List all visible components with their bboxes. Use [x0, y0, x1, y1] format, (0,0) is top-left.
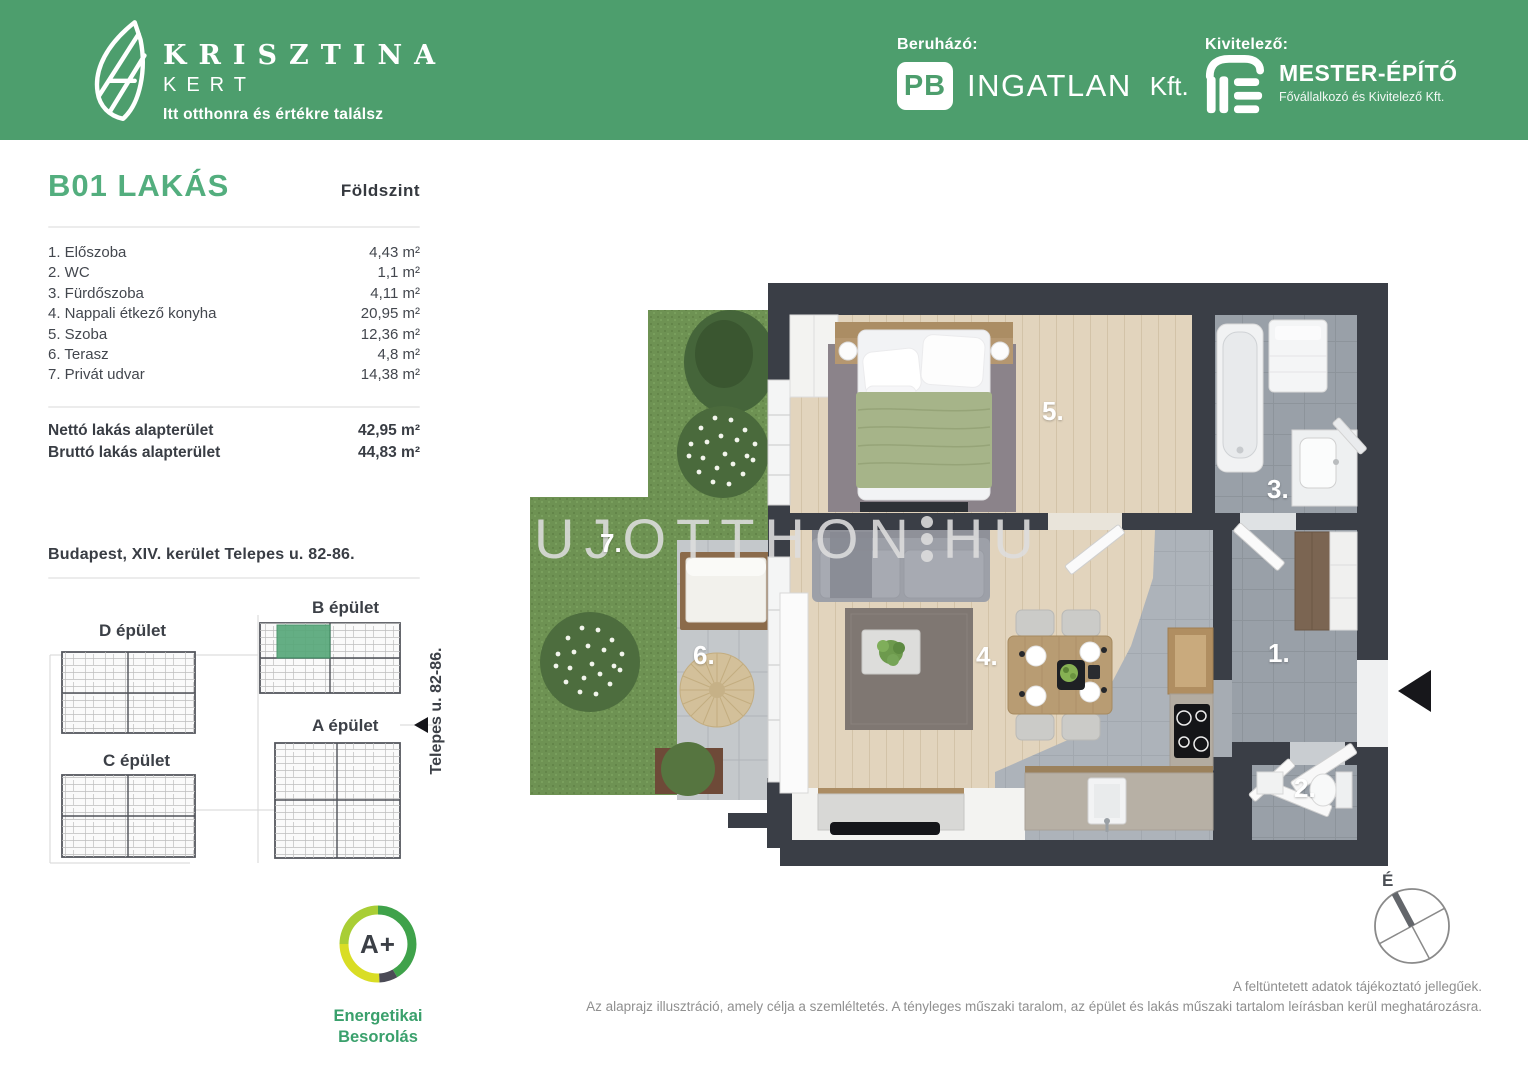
- room-name: 6. Terasz: [48, 345, 109, 365]
- room-area: 4,11 m²: [370, 284, 420, 304]
- room-area: 12,36 m²: [361, 325, 420, 345]
- contractor-company: MESTER-ÉPÍTŐ: [1279, 60, 1458, 87]
- energy-label-line1: Energetikai: [296, 1006, 460, 1027]
- room-row: 2. WC1,1 m²: [48, 263, 420, 283]
- watermark-text: HU: [943, 506, 1044, 571]
- room-name: 1. Előszoba: [48, 243, 126, 263]
- me-logo-icon: [1203, 54, 1265, 118]
- chair: [1062, 610, 1100, 636]
- brochure-page: KRISZTINA KERT Itt otthonra és értékre t…: [0, 0, 1528, 1080]
- flower-bush: [540, 612, 640, 712]
- room-area: 20,95 m²: [361, 304, 420, 324]
- lamp: [839, 342, 857, 360]
- header-band: KRISZTINA KERT Itt otthonra és értékre t…: [0, 0, 1528, 140]
- pb-logo-icon: PB: [897, 62, 953, 110]
- watermark-text: UJOTTHON: [534, 506, 919, 571]
- room-label-2: 2.: [1294, 773, 1316, 804]
- room-row: 6. Terasz4,8 m²: [48, 345, 420, 365]
- unit-title-row: B01 LAKÁS Földszint: [48, 168, 420, 204]
- room-name: 2. WC: [48, 263, 90, 283]
- totals-list: Nettó lakás alapterület42,95 m²Bruttó la…: [48, 420, 420, 464]
- contractor-label: Kivitelező:: [1205, 36, 1288, 54]
- unit-title: B01 LAKÁS: [48, 168, 229, 204]
- total-row: Nettó lakás alapterület42,95 m²: [48, 420, 420, 442]
- room-name: 3. Fürdőszoba: [48, 284, 144, 304]
- total-label: Bruttó lakás alapterület: [48, 442, 220, 464]
- pouf: [680, 653, 754, 727]
- room-name: 7. Privát udvar: [48, 365, 145, 385]
- tv: [830, 822, 940, 835]
- chair: [1016, 610, 1054, 636]
- energy-badge: A+ Energetikai Besorolás: [296, 896, 460, 1048]
- disclaimer-line2: Az alaprajz illusztráció, amely célja a …: [586, 997, 1482, 1017]
- room-row: 3. Fürdőszoba4,11 m²: [48, 284, 420, 304]
- divider: [48, 406, 420, 408]
- room-label-7: 7.: [600, 528, 622, 559]
- chair: [1062, 714, 1100, 740]
- developer-logo: PB INGATLAN Kft.: [897, 62, 1189, 110]
- contractor-logo: MESTER-ÉPÍTŐ Fővállalkozó és Kivitelező …: [1203, 54, 1458, 118]
- energy-label: Energetikai Besorolás: [296, 1006, 460, 1048]
- brand-name-2: KERT: [163, 74, 447, 97]
- building-label-b: B épület: [312, 598, 379, 618]
- total-label: Nettó lakás alapterület: [48, 420, 213, 442]
- brand-name: KRISZTINA: [163, 40, 447, 71]
- disclaimer-line1: A feltüntetett adatok tájékoztató jelleg…: [586, 977, 1482, 997]
- room-label-1: 1.: [1268, 638, 1290, 669]
- leaf-logo-icon: [84, 18, 162, 128]
- highlighted-unit: [277, 625, 330, 658]
- room-name: 5. Szoba: [48, 325, 107, 345]
- room-area: 1,1 m²: [377, 263, 420, 283]
- lamp: [991, 342, 1009, 360]
- room-label-5: 5.: [1042, 396, 1064, 427]
- street-arrow-icon: [414, 717, 428, 733]
- flower-bush: [677, 406, 769, 498]
- compass-icon: É: [1358, 864, 1468, 974]
- room-row: 1. Előszoba4,43 m²: [48, 243, 420, 263]
- divider: [48, 577, 420, 579]
- brand-block: KRISZTINA KERT Itt otthonra és értékre t…: [163, 40, 447, 124]
- divider: [48, 226, 420, 228]
- developer-label: Beruházó:: [897, 36, 978, 54]
- building-label-d: D épület: [99, 621, 166, 641]
- room-area: 14,38 m²: [361, 365, 420, 385]
- room-list: 1. Előszoba4,43 m²2. WC1,1 m²3. Fürdőszo…: [48, 243, 420, 386]
- street-label: Telepes u. 82-86.: [428, 626, 446, 796]
- room-area: 4,8 m²: [377, 345, 420, 365]
- unit-info-panel: B01 LAKÁS Földszint 1. Előszoba4,43 m²2.…: [48, 168, 420, 579]
- wc-sink: [1257, 772, 1283, 794]
- room-label-4: 4.: [976, 641, 998, 672]
- room-label-6: 6.: [693, 640, 715, 671]
- building-label-a: A épület: [312, 716, 378, 736]
- building-footprints: [62, 623, 400, 858]
- total-row: Bruttó lakás alapterület44,83 m²: [48, 442, 420, 464]
- developer-company: INGATLAN: [967, 68, 1132, 104]
- room-row: 7. Privát udvar14,38 m²: [48, 365, 420, 385]
- energy-label-line2: Besorolás: [296, 1027, 460, 1048]
- brand-tagline: Itt otthonra és értékre találsz: [163, 106, 447, 124]
- chair: [1016, 714, 1054, 740]
- building-label-c: C épület: [103, 751, 170, 771]
- room-row: 5. Szoba12,36 m²: [48, 325, 420, 345]
- room-name: 4. Nappali étkező konyha: [48, 304, 216, 324]
- contractor-subtitle: Fővállalkozó és Kivitelező Kft.: [1279, 90, 1458, 104]
- site-plan: B épület D épület A épület C épület Tele…: [40, 595, 460, 880]
- room-row: 4. Nappali étkező konyha20,95 m²: [48, 304, 420, 324]
- contractor-text: MESTER-ÉPÍTŐ Fővállalkozó és Kivitelező …: [1279, 60, 1458, 104]
- entry-arrow-icon: [1398, 670, 1431, 712]
- watermark-dots-icon: [921, 516, 933, 562]
- floor-label: Földszint: [341, 181, 420, 201]
- room-label-3: 3.: [1267, 474, 1289, 505]
- blanket: [856, 392, 992, 488]
- energy-rating: A+: [330, 896, 426, 992]
- floor-plan: UJOTTHON HU 7. 6. 5. 4. 3. 1. 2.: [530, 280, 1440, 870]
- room-area: 4,43 m²: [369, 243, 420, 263]
- total-value: 42,95 m²: [358, 420, 420, 442]
- disclaimer: A feltüntetett adatok tájékoztató jelleg…: [586, 977, 1482, 1017]
- address: Budapest, XIV. kerület Telepes u. 82-86.: [48, 546, 420, 564]
- developer-suffix: Kft.: [1150, 71, 1189, 102]
- compass-north-label: É: [1382, 871, 1393, 890]
- total-value: 44,83 m²: [358, 442, 420, 464]
